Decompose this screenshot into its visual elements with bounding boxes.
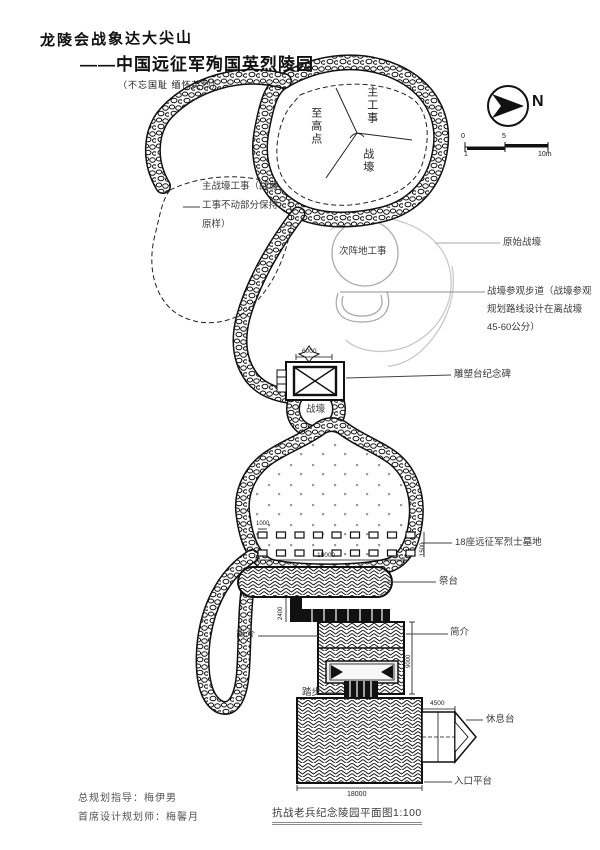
north-label: N bbox=[532, 93, 544, 111]
dim-entrance-width: 18000 bbox=[347, 791, 366, 798]
label-graves: 18座远征军烈士墓地 bbox=[455, 537, 542, 549]
label-secondary-works: 次阵地工事 bbox=[339, 246, 387, 258]
sheet-title-line1: 龙陵会战象达大尖山 bbox=[40, 26, 193, 50]
label-summit: 至高点 bbox=[308, 107, 322, 146]
entrance-platform bbox=[297, 698, 476, 791]
label-visit-path-2: 规划路线设计在离战壕 bbox=[487, 304, 582, 316]
credit-director: 总规划指导：梅伊男 bbox=[78, 789, 177, 804]
plan-sheet: 龙陵会战象达大尖山 ——中国远征军殉国英烈陵园 （不忘国耻 缅怀英烈） N 0 … bbox=[0, 0, 600, 850]
dim-step-band-height: 2400 bbox=[278, 607, 284, 620]
scale-bar bbox=[465, 142, 548, 152]
dim-rest-width: 4500 bbox=[430, 700, 444, 707]
label-main-trench-note-3: 原样） bbox=[202, 219, 231, 231]
scale-tick-5: 5 bbox=[502, 133, 506, 140]
label-sculpture-monument: 雕塑台纪念碑 bbox=[454, 369, 511, 381]
label-visit-path-1: 战壕参观步道（战壕参观 bbox=[487, 286, 592, 298]
north-arrow bbox=[488, 86, 528, 126]
label-intro-right: 简介 bbox=[450, 627, 469, 639]
label-altar: 祭台 bbox=[439, 576, 458, 588]
label-original-trench: 原始战壕 bbox=[503, 237, 541, 249]
label-rest-platform: 休息台 bbox=[486, 714, 515, 726]
label-main-trench-note-1: 主战壕工事（战壕 bbox=[202, 181, 278, 193]
scale-tick-1: 1 bbox=[464, 151, 468, 158]
steps-bars bbox=[344, 681, 378, 698]
label-steps: 踏步 bbox=[302, 687, 321, 699]
sheet-subtitle: （不忘国耻 缅怀英烈） bbox=[118, 78, 222, 91]
dim-grave-rows-height: 1500 bbox=[420, 543, 426, 556]
secondary-works-circles bbox=[332, 220, 398, 322]
label-trench-top: 战壕 bbox=[360, 148, 374, 174]
dim-graves-span: 15000 bbox=[317, 552, 335, 559]
dim-monument-width: 6000 bbox=[302, 348, 316, 355]
dim-intro-height: 9000 bbox=[406, 655, 412, 668]
scale-tick-0: 0 bbox=[461, 133, 465, 140]
scale-tick-10m: 10m bbox=[538, 151, 552, 158]
label-entrance-platform: 入口平台 bbox=[454, 776, 492, 788]
sheet-title-line2: ——中国远征军殉国英烈陵园 bbox=[80, 50, 314, 75]
altar-platform bbox=[238, 567, 392, 597]
label-intro-left: 简介 bbox=[236, 629, 255, 641]
drawing-caption: 抗战老兵纪念陵园平面图1:100 bbox=[272, 805, 422, 825]
label-main-works: 主工事 bbox=[364, 86, 378, 125]
dim-grave-width: 1000 bbox=[256, 521, 269, 527]
label-trench-mid: 战壕 bbox=[306, 404, 325, 416]
credit-designer: 首席设计规划师：梅馨月 bbox=[78, 808, 199, 823]
step-band bbox=[286, 596, 390, 622]
label-visit-path-3: 45-60公分） bbox=[487, 322, 540, 334]
label-main-trench-note-2: 工事不动部分保持 bbox=[202, 200, 278, 212]
